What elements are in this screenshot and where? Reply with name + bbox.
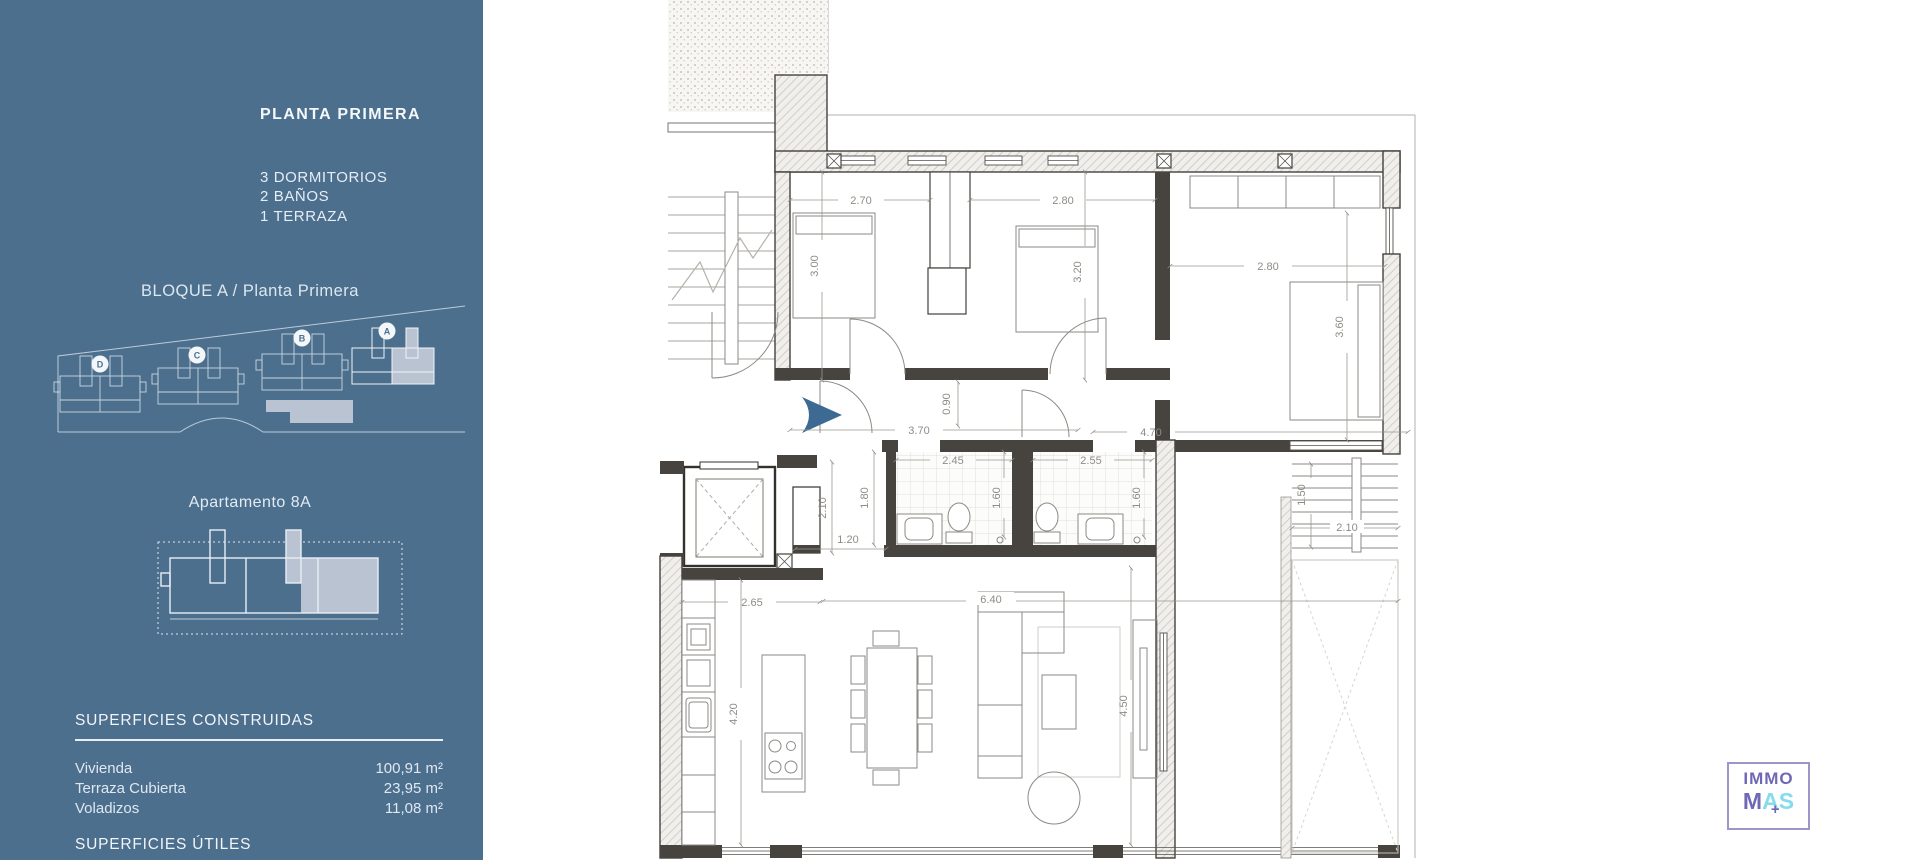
- feature-bathrooms: 2 BAÑOS: [260, 187, 388, 206]
- floor-plan: 2.70 3.00 2.80 3.20 2.80 3.60 3.70 0.90 …: [483, 0, 1920, 860]
- communal-stairs: [668, 192, 775, 364]
- badge-d: D: [97, 360, 104, 370]
- west-wall-bed1: [775, 172, 790, 380]
- apartment-label: Apartamento 8A: [70, 494, 430, 512]
- surfaces-built-section: SUPERFICIES CONSTRUIDAS Vivienda 100,91 …: [75, 712, 443, 819]
- block-badges: D C B A: [92, 323, 396, 373]
- dim-living-width: 6.40: [980, 594, 1001, 606]
- dim-bath2-width: 2.55: [1080, 455, 1101, 467]
- info-sidebar: PLANTA PRIMERA 3 DORMITORIOS 2 BAÑOS 1 T…: [0, 0, 483, 860]
- lounge: [978, 592, 1157, 824]
- kitchen-counter: [682, 580, 715, 845]
- bed-1: [793, 213, 875, 318]
- block-a-patio: [266, 400, 353, 423]
- dim-bed3-depth: 3.60: [1334, 316, 1346, 337]
- dim-hall-mid: 0.90: [941, 393, 953, 414]
- site-map: D C B A: [0, 300, 483, 445]
- dim-bed3-width: 2.80: [1257, 261, 1278, 273]
- dim-bed1-depth: 3.00: [809, 255, 821, 276]
- dim-bed1-width: 2.70: [850, 195, 871, 207]
- block-label: BLOQUE A / Planta Primera: [70, 282, 430, 301]
- dim-hall-width: 1.20: [837, 534, 858, 546]
- south-wall-bed1: [775, 368, 850, 380]
- dim-hall-left: 3.70: [908, 425, 929, 437]
- rug: [1038, 627, 1120, 777]
- apartment-highlight: [301, 558, 378, 613]
- dim-living-depth: 4.50: [1118, 695, 1130, 716]
- immomas-logo: IMMO MAS+: [1727, 762, 1810, 830]
- surface-label: Voladizos: [75, 799, 139, 819]
- dining-set: [851, 631, 932, 785]
- badge-b: B: [299, 334, 306, 344]
- feature-list: 3 DORMITORIOS 2 BAÑOS 1 TERRAZA: [260, 168, 388, 226]
- toilet-1: [946, 532, 972, 543]
- dim-bath1-width: 2.45: [942, 455, 963, 467]
- bed-3: [1290, 282, 1383, 420]
- badge-c: C: [194, 351, 201, 361]
- dim-bath2-depth: 1.60: [1131, 487, 1143, 508]
- dining-table: [867, 648, 917, 768]
- logo-letter-m: M: [1743, 788, 1762, 814]
- dim-kitchen-depth: 4.20: [728, 703, 740, 724]
- tv-unit: [1133, 620, 1157, 778]
- dim-hall-right: 4.70: [1140, 427, 1161, 439]
- pouf: [1028, 772, 1080, 824]
- west-wall-living: [660, 556, 682, 858]
- dim-bed2-depth: 3.20: [1072, 261, 1084, 282]
- surface-value: 11,08 m²: [385, 799, 443, 819]
- surface-value: 100,91 m²: [375, 759, 443, 779]
- dim-nook: 1.80: [859, 487, 871, 508]
- terrace: [1175, 440, 1398, 858]
- kitchen: [682, 580, 805, 845]
- bedroom-furniture: [793, 176, 1383, 420]
- railing: [668, 123, 775, 132]
- surfaces-built-title: SUPERFICIES CONSTRUIDAS: [75, 712, 443, 730]
- south-windows: [722, 848, 1378, 855]
- feature-terrace: 1 TERRAZA: [260, 207, 388, 226]
- surface-value: 23,95 m²: [384, 779, 443, 799]
- logo-letter-s: S: [1779, 788, 1794, 814]
- logo-word-immo: IMMO: [1729, 769, 1808, 789]
- dim-bath1-depth: 1.60: [991, 487, 1003, 508]
- east-wall-bed3: [1383, 254, 1400, 454]
- wardrobe-bed3: [1190, 176, 1380, 208]
- entrance-arrow-icon: [802, 397, 842, 433]
- surfaces-useful-title: SUPERFICIES ÚTILES: [75, 836, 443, 854]
- logo-plus-icon: +: [1771, 798, 1780, 822]
- surface-label: Vivienda: [75, 759, 132, 779]
- hall-wall: [793, 487, 820, 553]
- page-title: PLANTA PRIMERA: [260, 106, 421, 124]
- toilet-2: [1034, 532, 1060, 543]
- dim-hall-depth: 2.10: [817, 497, 829, 518]
- coffee-table: [1042, 675, 1076, 729]
- east-corner-wall: [1383, 151, 1400, 208]
- surface-row: Terraza Cubierta 23,95 m²: [75, 779, 443, 799]
- break-line: [672, 230, 772, 300]
- sofa: [978, 592, 1064, 778]
- divider: [75, 739, 443, 741]
- feature-bedrooms: 3 DORMITORIOS: [260, 168, 388, 187]
- dim-bed2-width: 2.80: [1052, 195, 1073, 207]
- dim-stairs-depth: 1.50: [1296, 484, 1308, 505]
- logo-word-mas: MAS+: [1743, 789, 1794, 813]
- surface-row: Voladizos 11,08 m²: [75, 799, 443, 819]
- kitchen-island: [762, 655, 805, 792]
- badge-a: A: [384, 327, 391, 337]
- dim-kitchen-width: 2.65: [741, 597, 762, 609]
- surface-label: Terraza Cubierta: [75, 779, 186, 799]
- south-wall-bed2: [1106, 368, 1170, 380]
- bed-2: [1016, 226, 1098, 332]
- surface-row: Vivienda 100,91 m²: [75, 759, 443, 779]
- apartment-locator: [0, 520, 483, 650]
- brochure-page: PLANTA PRIMERA 3 DORMITORIOS 2 BAÑOS 1 T…: [0, 0, 1920, 860]
- dim-stairs-width: 2.10: [1336, 522, 1357, 534]
- west-wall-bed3: [1155, 172, 1170, 340]
- surfaces-useful-section: SUPERFICIES ÚTILES: [75, 836, 443, 860]
